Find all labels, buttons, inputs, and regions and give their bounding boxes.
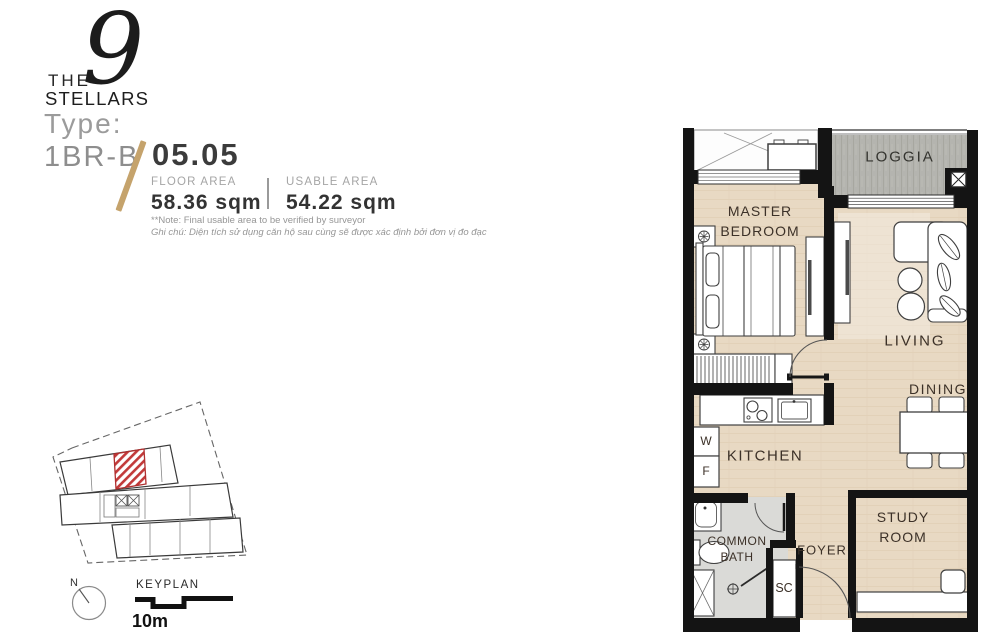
label-washer: W [700, 434, 711, 448]
scale-label: 10m [132, 611, 168, 632]
label-living: LIVING [884, 333, 945, 350]
label-loggia: LOGGIA [865, 149, 935, 166]
label-bath-line2: BATH [708, 549, 767, 565]
label-dining: DINING [909, 381, 967, 397]
floor-area-block: FLOOR AREA 58.36 sqm [151, 176, 262, 215]
label-foyer: FOYER [797, 543, 847, 558]
usable-area-block: USABLE AREA 54.22 sqm [286, 176, 397, 215]
tv-console-living [834, 222, 850, 323]
brand-nine-glyph: 9 [82, 0, 144, 100]
label-study-line2: ROOM [877, 527, 929, 547]
label-fridge: F [702, 464, 709, 478]
label-bath-line1: COMMON [708, 533, 767, 549]
ac-ledge [694, 130, 818, 174]
usable-area-label: USABLE AREA [286, 176, 397, 188]
scale-bar [135, 599, 233, 607]
label-kitchen: KITCHEN [727, 448, 803, 465]
compass-needle [79, 589, 89, 603]
nightstand-bottom [693, 334, 715, 355]
label-shoe-cabinet: SC [775, 581, 792, 595]
north-label: N [70, 577, 78, 589]
label-common-bath: COMMON BATH [708, 533, 767, 565]
wardrobe [693, 354, 792, 385]
notes-block: **Note: Final usable area to be verified… [151, 215, 511, 238]
floor-area-label: FLOOR AREA [151, 176, 262, 188]
keyplan-drawing [40, 385, 300, 635]
keyplan-title: KEYPLAN [136, 579, 200, 591]
label-master-bedroom: MASTER BEDROOM [720, 201, 799, 241]
type-value: 1BR-B [44, 141, 139, 174]
floorplan-block: LOGGIA MASTER BEDROOM LIVING DINING KITC… [660, 110, 1000, 637]
brand-stellars: STELLARS [45, 88, 149, 110]
unit-number: 05.05 [152, 137, 240, 173]
keyplan-block: N KEYPLAN 10m [40, 385, 300, 635]
usable-area-value: 54.22 sqm [286, 191, 397, 215]
kitchen-counter [700, 395, 824, 425]
label-master-line1: MASTER [720, 201, 799, 221]
keyplan-wing-bottom [112, 518, 243, 558]
note-line-vi: Ghi chú: Diện tích sử dụng căn hộ sau cù… [151, 227, 511, 239]
study-desk [857, 592, 969, 612]
tv-console-bedroom [806, 237, 824, 336]
study-chair [941, 570, 965, 593]
area-divider [267, 178, 269, 209]
keyplan-highlighted-unit [114, 449, 146, 489]
label-study-room: STUDY ROOM [877, 507, 929, 547]
type-label: Type: [44, 108, 122, 140]
label-master-line2: BEDROOM [720, 221, 799, 241]
label-study-line1: STUDY [877, 507, 929, 527]
floor-area-value: 58.36 sqm [151, 191, 262, 215]
brochure-page: { "header": { "the": "THE", "nine": "9",… [0, 0, 1000, 637]
note-line-en: **Note: Final usable area to be verified… [151, 215, 511, 227]
bed [696, 243, 795, 336]
